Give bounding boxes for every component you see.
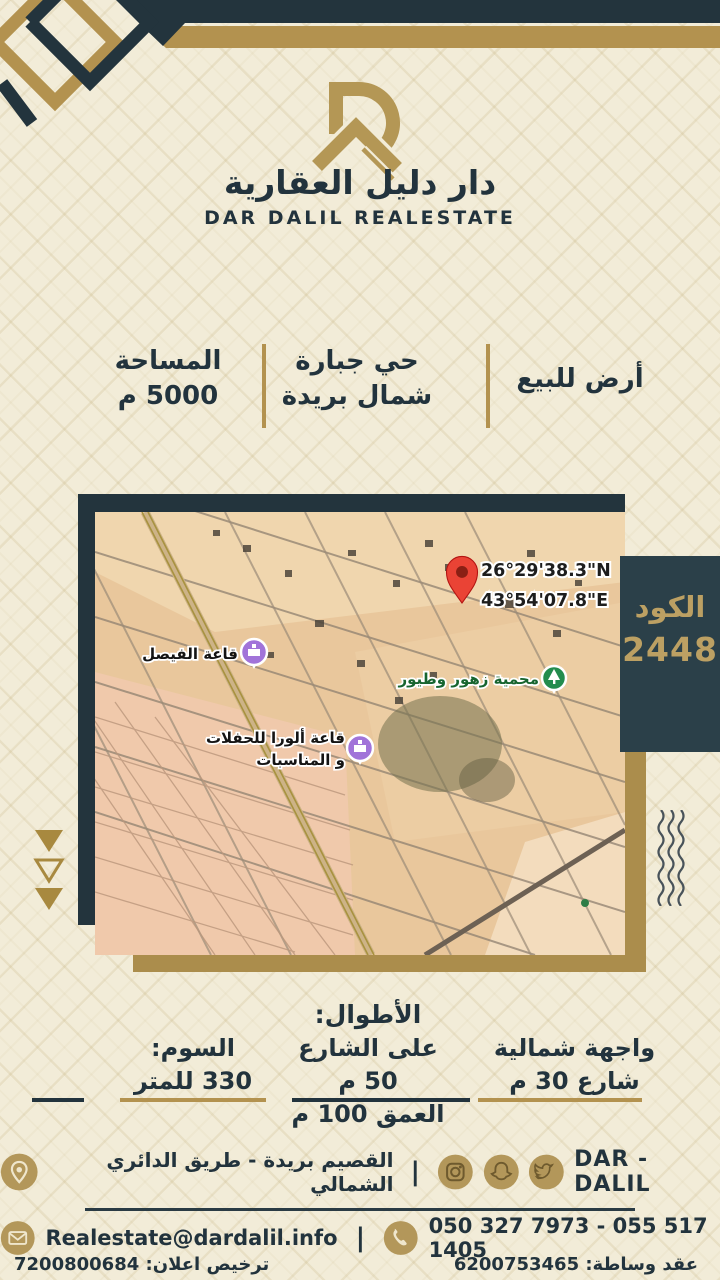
price-value: 330 للمتر (118, 1065, 268, 1098)
snapchat-icon[interactable] (483, 1152, 520, 1192)
code-label: الكود (620, 590, 720, 624)
area-label: المساحة (88, 344, 248, 379)
phone-icon[interactable] (383, 1217, 419, 1259)
footer-address: القصيم بريدة - طريق الدائري الشمالي (48, 1148, 394, 1196)
satellite-map[interactable]: 26°29'38.3"N 43°54'07.8"E قاعة الفيصل قا… (95, 512, 625, 955)
underline-gold (478, 1098, 642, 1102)
license-number: ترخيص اعلان: 7200800684 (14, 1254, 269, 1275)
coordinate-east: 43°54'07.8"E (481, 591, 608, 611)
underline-gold (120, 1098, 266, 1102)
venue2-label-line2: و المناسبات (256, 751, 345, 769)
price-info: السوم: 330 للمتر (118, 1032, 268, 1098)
district-line2: شمال بريدة (277, 379, 437, 414)
district: حي جبارة شمال بريدة (277, 344, 437, 414)
contract-number: عقد وساطة: 6200753465 (454, 1254, 698, 1275)
footer-brand: DAR - DALIL (574, 1147, 720, 1197)
footer-separator: | (348, 1223, 374, 1253)
facade-info: واجهة شمالية شارع 30 م (492, 1032, 657, 1098)
underline-navy (292, 1098, 470, 1102)
price-label: السوم: (118, 1032, 268, 1065)
divider (262, 344, 266, 428)
instagram-icon[interactable] (437, 1152, 474, 1192)
footer-divider (85, 1208, 635, 1211)
venue1-label: قاعة الفيصل (142, 645, 238, 663)
triangle-decor (30, 826, 70, 918)
twitter-icon[interactable] (528, 1152, 565, 1192)
footer-separator: | (403, 1157, 429, 1187)
length-line1: على الشارع 50 م (280, 1032, 456, 1098)
real-estate-ad-poster: دار دليل العقارية DAR DALIL REALESTATE أ… (0, 0, 720, 1280)
code-value: 2448 (620, 630, 720, 669)
coordinate-north: 26°29'38.3"N (481, 561, 611, 581)
divider (486, 344, 490, 428)
reserve-label: محمية زهور وطيور (397, 670, 539, 688)
length-line2: العمق 100 م (280, 1098, 456, 1131)
location-pin-icon[interactable] (0, 1151, 39, 1193)
brand-title-arabic: دار دليل العقارية (0, 163, 720, 202)
area: المساحة 5000 م (88, 344, 248, 414)
lengths-heading: الأطوال: (280, 1000, 456, 1029)
wave-decor (656, 810, 692, 906)
lengths-info: على الشارع 50 م العمق 100 م (280, 1032, 456, 1131)
footer-email[interactable]: Realestate@dardalil.info (46, 1226, 338, 1250)
facade-line2: شارع 30 م (492, 1065, 657, 1098)
facade-line1: واجهة شمالية (492, 1032, 657, 1065)
footer-social-row: القصيم بريدة - طريق الدائري الشمالي | DA… (0, 1150, 720, 1194)
dash-decor (32, 1098, 84, 1102)
area-value: 5000 م (88, 379, 248, 414)
small-green-marker-icon (581, 899, 589, 907)
code-panel: الكود 2448 (620, 556, 720, 752)
mail-icon[interactable] (0, 1217, 36, 1259)
district-line1: حي جبارة (277, 344, 437, 379)
venue2-label-line1: قاعة ألورا للحفلات (206, 728, 345, 747)
brand-title-english: DAR DALIL REALESTATE (0, 207, 720, 229)
sale-type: أرض للبيع (495, 344, 665, 397)
